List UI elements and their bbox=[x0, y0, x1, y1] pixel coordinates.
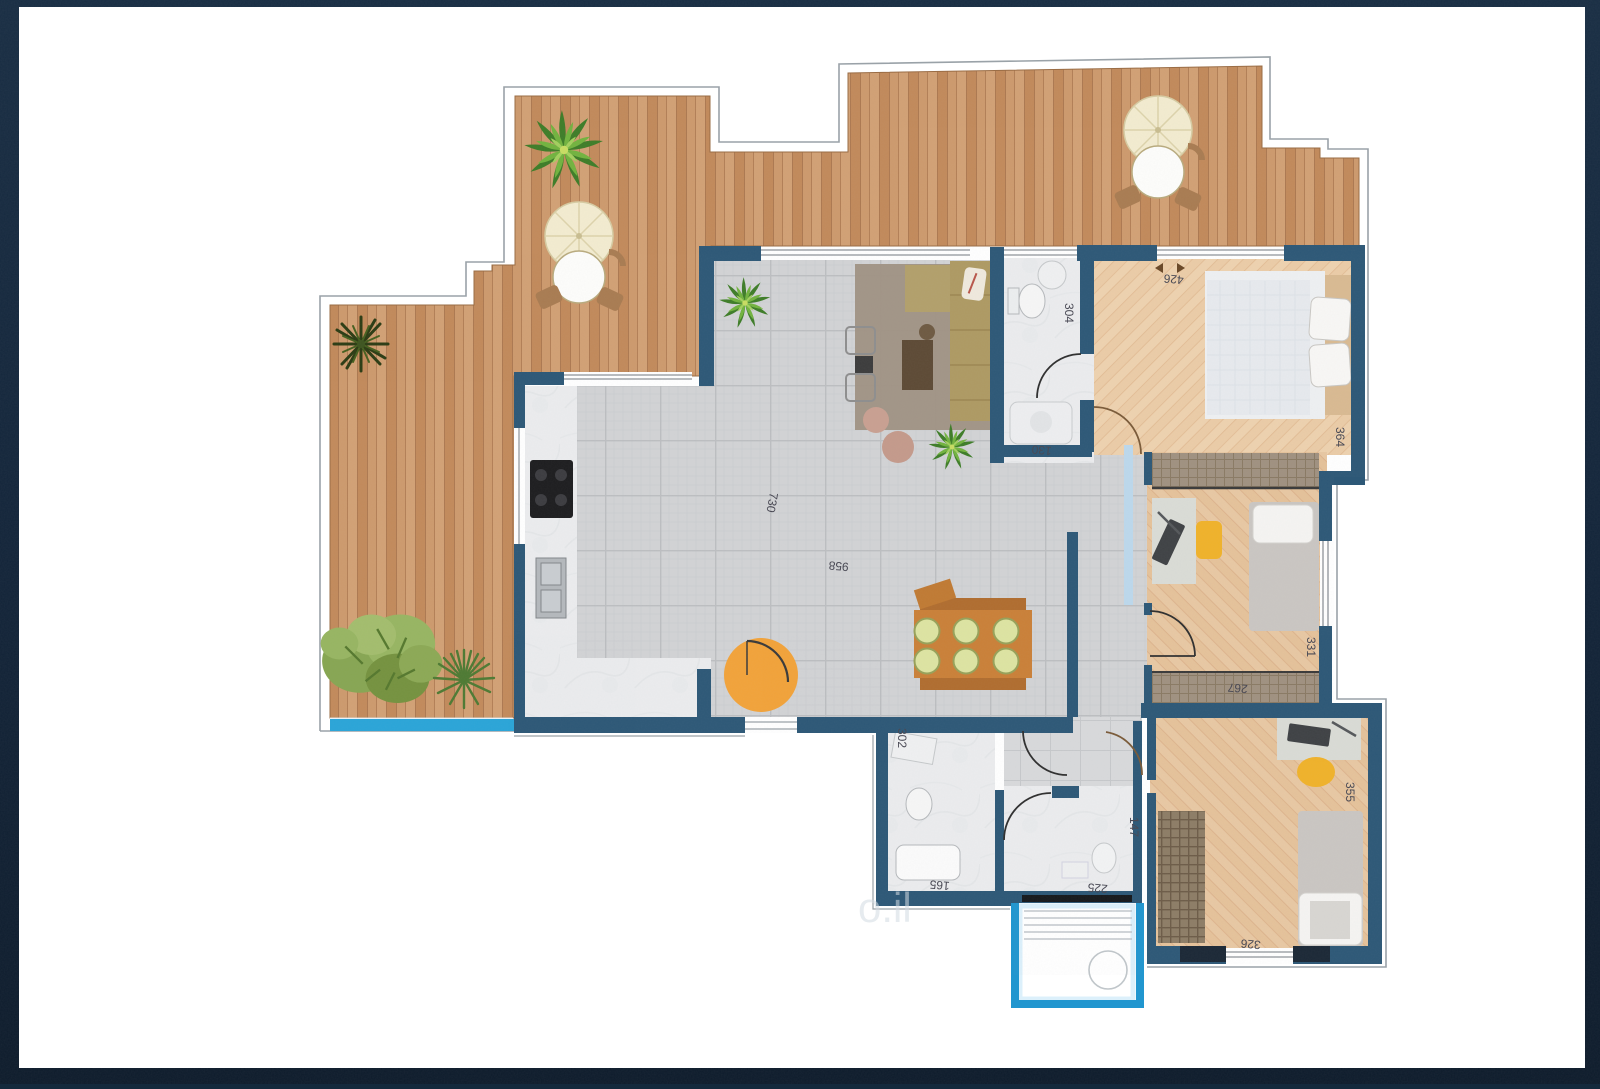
svg-text:355: 355 bbox=[1343, 782, 1357, 802]
svg-text:426: 426 bbox=[1163, 271, 1184, 287]
svg-text:302: 302 bbox=[895, 728, 909, 748]
svg-text:326: 326 bbox=[1240, 936, 1261, 952]
svg-text:331: 331 bbox=[1304, 637, 1318, 657]
svg-text:304: 304 bbox=[1062, 303, 1076, 323]
svg-text:147: 147 bbox=[1127, 817, 1141, 837]
svg-text:958: 958 bbox=[828, 558, 849, 574]
svg-text:165: 165 bbox=[929, 877, 950, 893]
svg-text:130: 130 bbox=[1031, 442, 1052, 458]
svg-text:225: 225 bbox=[1087, 880, 1108, 896]
svg-text:o.il: o.il bbox=[858, 884, 912, 931]
svg-text:364: 364 bbox=[1333, 427, 1347, 447]
svg-text:267: 267 bbox=[1227, 680, 1248, 696]
